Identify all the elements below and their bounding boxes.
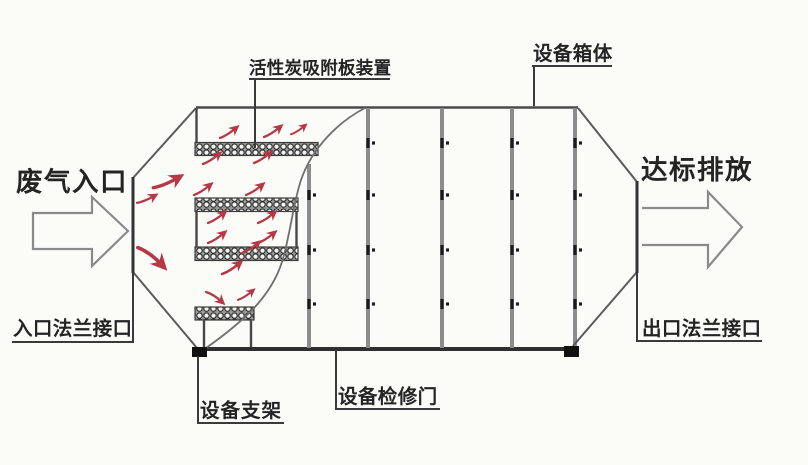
label-equipment-support: 设备支架	[200, 399, 282, 422]
label-adsorption-plate: 活性炭吸附板装置	[249, 58, 391, 79]
support-foot-right	[564, 346, 579, 357]
carbon-plate	[195, 307, 254, 320]
label-waste-gas-inlet: 废气入口	[16, 167, 128, 198]
label-inlet-flange: 入口法兰接口	[13, 317, 132, 340]
diagram-canvas: 活性炭吸附板装置 设备箱体 废气入口 达标排放 入口法兰接口 出口法兰接口 设备…	[0, 0, 808, 465]
label-equipment-box: 设备箱体	[533, 42, 613, 65]
carbon-plate	[195, 143, 318, 156]
carbon-plate	[195, 198, 298, 212]
label-outlet-flange: 出口法兰接口	[642, 317, 761, 340]
support-foot-left	[192, 347, 207, 357]
label-compliant-discharge: 达标排放	[641, 155, 753, 186]
label-access-door: 设备检修门	[338, 385, 438, 408]
adsorption-equipment-diagram: 活性炭吸附板装置 设备箱体 废气入口 达标排放 入口法兰接口 出口法兰接口 设备…	[0, 0, 808, 465]
